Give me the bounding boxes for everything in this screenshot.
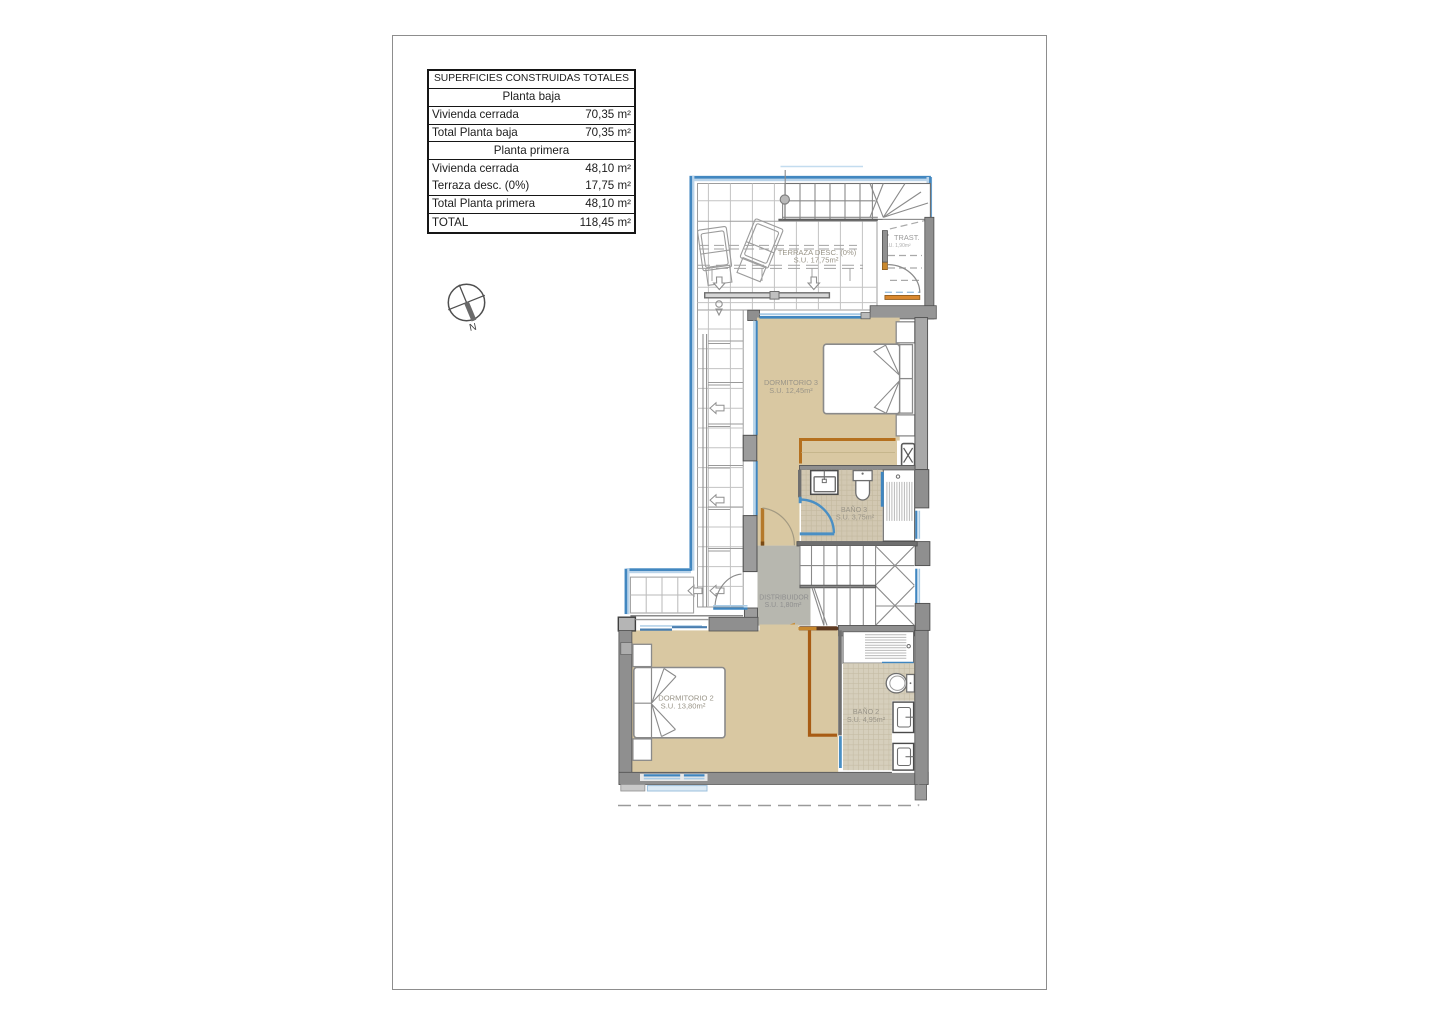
svg-text:S.U. 3,75m²: S.U. 3,75m²	[836, 513, 875, 522]
svg-text:N: N	[468, 322, 477, 334]
svg-text:S.U. 1,80m²: S.U. 1,80m²	[765, 602, 802, 609]
svg-text:S.U. 12,45m²: S.U. 12,45m²	[769, 386, 813, 395]
svg-text:TRAST.: TRAST.	[894, 233, 919, 242]
svg-text:DISTRIBUIDOR: DISTRIBUIDOR	[759, 595, 808, 602]
svg-text:S.U. 1,90m²: S.U. 1,90m²	[884, 243, 911, 249]
svg-text:S.U. 17,75m²: S.U. 17,75m²	[794, 256, 839, 265]
svg-text:S.U. 4,95m²: S.U. 4,95m²	[847, 715, 886, 724]
svg-text:S.U. 13,80m²: S.U. 13,80m²	[661, 702, 706, 711]
